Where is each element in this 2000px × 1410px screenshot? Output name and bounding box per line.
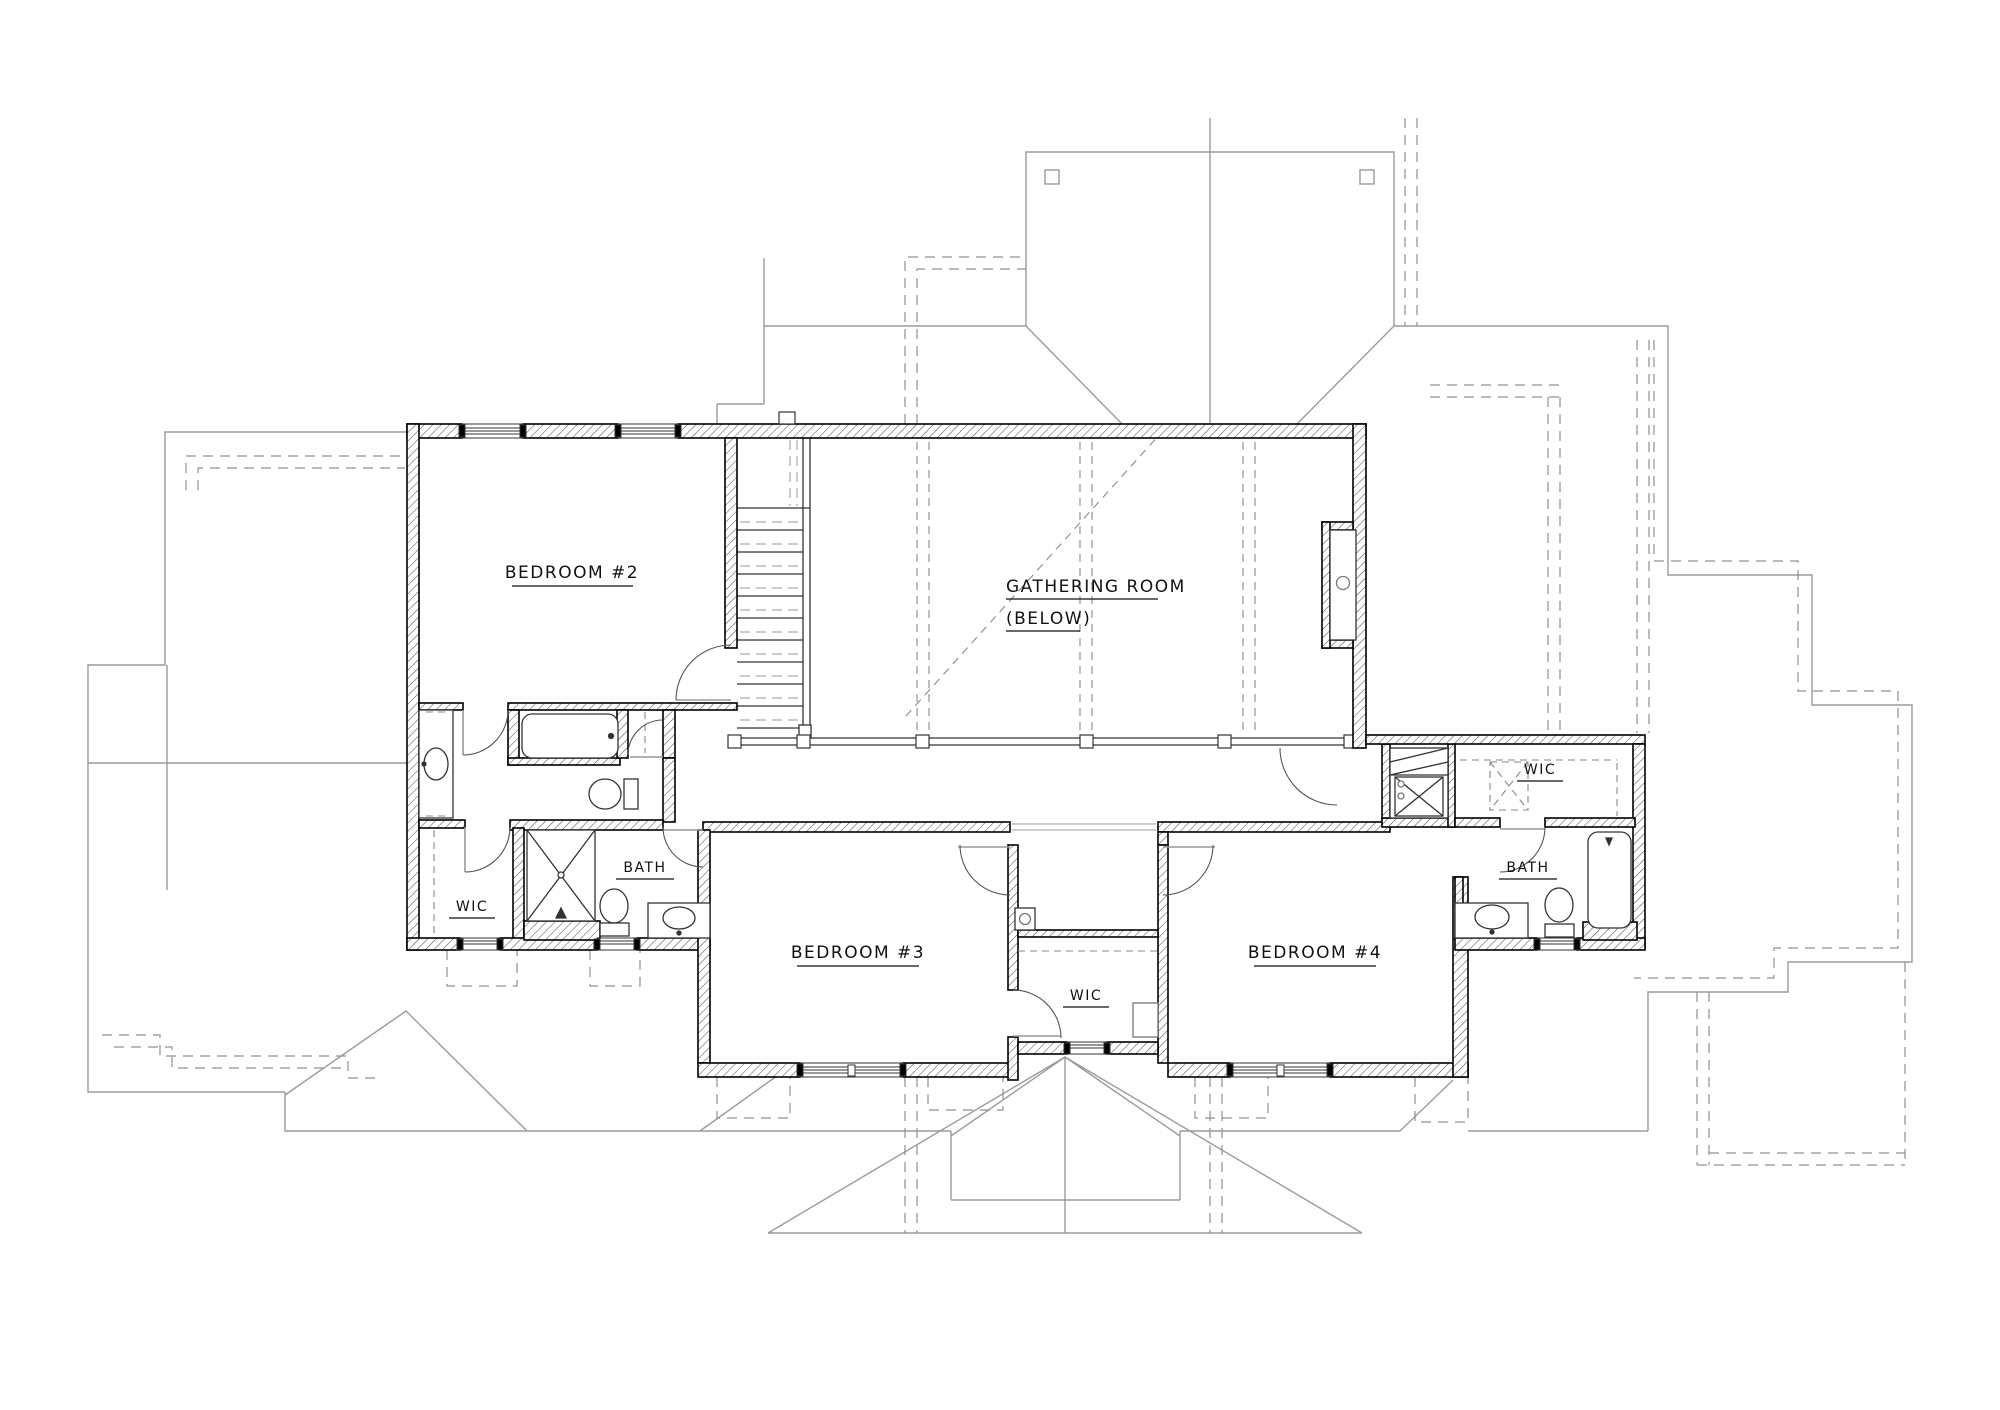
room-label-bedroom-4: BEDROOM #4 xyxy=(1248,943,1382,963)
door-wic-left xyxy=(465,827,510,872)
sink xyxy=(663,907,695,929)
top-wall-bump xyxy=(779,412,795,424)
door-wic-center xyxy=(1013,990,1061,1038)
room-label-wic-center: WIC xyxy=(1070,988,1102,1004)
closet-shelf xyxy=(1133,1003,1158,1037)
window xyxy=(1227,1063,1333,1077)
toilet-tank xyxy=(600,923,629,936)
railing xyxy=(728,735,1357,748)
bathtub xyxy=(1588,832,1631,928)
bathtub xyxy=(522,714,618,758)
toilet-tank xyxy=(1545,924,1574,937)
stairs-dashed xyxy=(740,440,800,720)
room-label-bath-left: BATH xyxy=(623,860,666,876)
window xyxy=(797,1063,906,1077)
toilet-bowl xyxy=(600,889,628,923)
toilet-bowl xyxy=(1545,888,1573,922)
room-label-bath-right: BATH xyxy=(1506,860,1549,876)
room-label-wic-right: WIC xyxy=(1524,762,1556,778)
room-label-bedroom-3: BEDROOM #3 xyxy=(791,943,925,963)
toilet-tank xyxy=(624,779,638,809)
window xyxy=(457,938,503,950)
floor-plan-drawing: BEDROOM #2 GATHERING ROOM (BELOW) BEDROO… xyxy=(0,0,2000,1410)
door-bedroom4 xyxy=(1163,845,1215,895)
toilet-bowl xyxy=(589,779,621,809)
room-label-gathering-below: (BELOW) xyxy=(1006,609,1091,629)
room-label-gathering-room: GATHERING ROOM xyxy=(1006,577,1186,597)
door-bedroom2 xyxy=(676,645,731,700)
sink xyxy=(424,748,448,780)
stairs xyxy=(737,437,811,737)
sink xyxy=(1475,905,1509,929)
door-hall-bath xyxy=(463,710,508,755)
window xyxy=(594,938,640,950)
window xyxy=(1534,938,1580,950)
room-label-bedroom-2: BEDROOM #2 xyxy=(505,563,639,583)
door-bath-left xyxy=(663,827,703,867)
floor-plan-page: BEDROOM #2 GATHERING ROOM (BELOW) BEDROO… xyxy=(0,0,2000,1410)
window xyxy=(615,424,681,438)
door-bedroom3 xyxy=(958,845,1010,895)
room-label-wic-left: WIC xyxy=(456,899,488,915)
window xyxy=(459,424,526,438)
window xyxy=(1064,1042,1110,1054)
door-back-hall xyxy=(1280,748,1337,805)
